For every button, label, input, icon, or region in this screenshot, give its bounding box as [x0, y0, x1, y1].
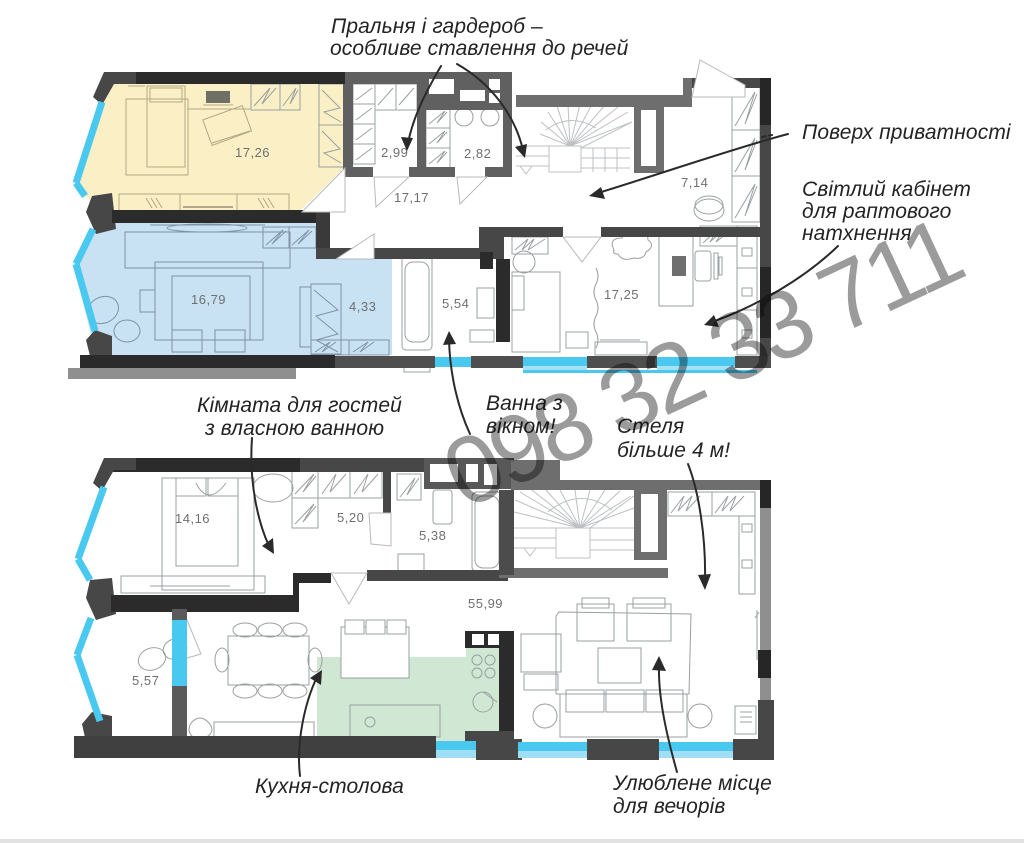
svg-text:16,79: 16,79 [191, 292, 226, 307]
svg-text:для вечорів: для вечорів [613, 795, 725, 818]
svg-text:17,26: 17,26 [235, 145, 270, 160]
svg-text:Кухня-столова: Кухня-столова [255, 775, 404, 798]
svg-text:7,14: 7,14 [681, 175, 708, 190]
svg-text:55,99: 55,99 [468, 596, 503, 611]
svg-text:2,99: 2,99 [381, 145, 408, 160]
svg-text:Улюблене місце: Улюблене місце [612, 772, 772, 795]
svg-text:14,16: 14,16 [175, 511, 210, 526]
svg-text:5,20: 5,20 [337, 510, 364, 525]
svg-text:Пральня і гардероб –: Пральня і гардероб – [331, 15, 543, 38]
svg-text:Кімната для гостей: Кімната для гостей [197, 394, 402, 417]
svg-text:5,57: 5,57 [132, 673, 159, 688]
svg-text:4,33: 4,33 [349, 299, 376, 314]
svg-text:2,82: 2,82 [464, 146, 491, 161]
svg-text:особливе ставлення до речей: особливе ставлення до речей [330, 37, 629, 60]
svg-text:5,38: 5,38 [419, 528, 446, 543]
svg-text:17,25: 17,25 [604, 287, 639, 302]
svg-text:Поверх приватності: Поверх приватності [802, 121, 1012, 144]
svg-text:з власною ванною: з власною ванною [204, 417, 384, 440]
svg-text:5,54: 5,54 [442, 296, 469, 311]
svg-text:Світлий кабінет: Світлий кабінет [802, 178, 971, 201]
svg-text:17,17: 17,17 [394, 190, 429, 205]
